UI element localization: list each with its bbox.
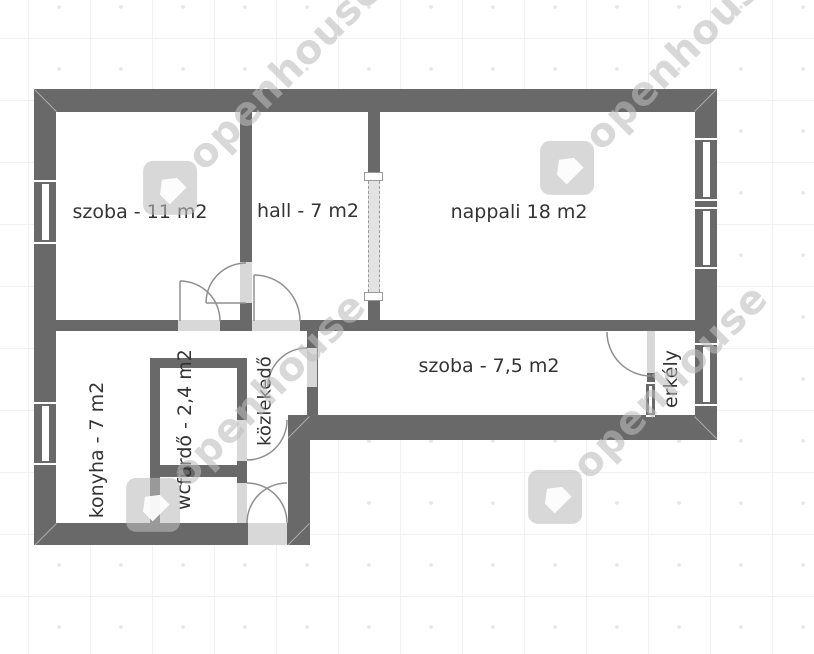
room-label-erkely: erkély — [660, 350, 682, 408]
room-label-nappali: nappali 18 m2 — [451, 201, 588, 223]
room-label-hall: hall - 7 m2 — [257, 200, 359, 222]
room-label-szoba1: szoba - 11 m2 — [73, 201, 208, 223]
door-arc-konyha-szoba1 — [180, 281, 220, 321]
room-label-furdo: fürdő - 2,4 m2 — [174, 349, 196, 485]
floor-plan: szoba - 11 m2 hall - 7 m2 nappali 18 m2 … — [0, 0, 814, 654]
door-arc-erkely — [607, 332, 651, 376]
room-label-konyha: konyha - 7 m2 — [86, 382, 108, 519]
room-label-kozlekedo: közlekedő — [255, 356, 276, 446]
room-label-szoba2: szoba - 7,5 m2 — [419, 355, 560, 377]
room-label-wc: wc — [173, 484, 195, 510]
door-arc-hall-kozlekedo — [254, 275, 300, 321]
door-arcs-layer — [0, 0, 814, 654]
